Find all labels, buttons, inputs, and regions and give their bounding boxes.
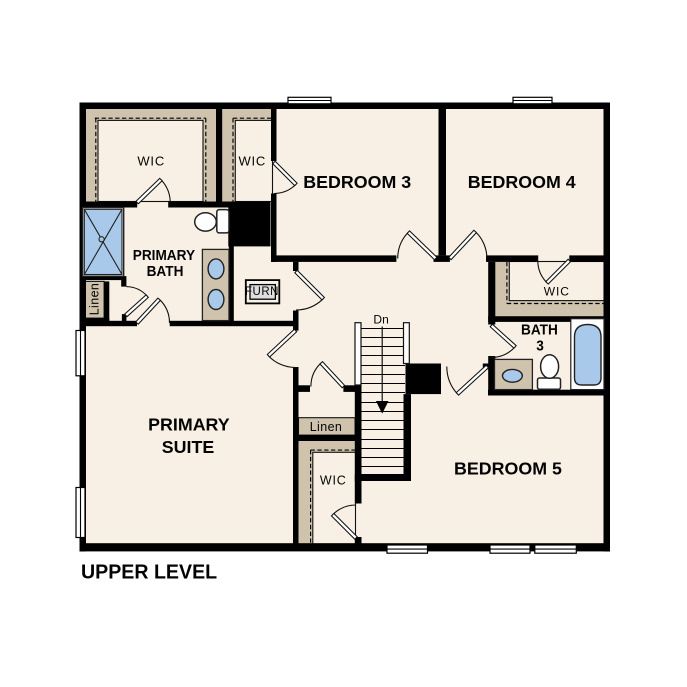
- svg-text:Linen: Linen: [88, 283, 102, 316]
- svg-text:WIC: WIC: [544, 284, 570, 298]
- svg-text:Dn: Dn: [373, 312, 388, 326]
- svg-text:PRIMARY: PRIMARY: [148, 415, 230, 435]
- svg-text:WIC: WIC: [320, 474, 347, 488]
- svg-text:FURN: FURN: [245, 286, 279, 298]
- svg-text:BEDROOM 5: BEDROOM 5: [454, 458, 562, 478]
- svg-text:WIC: WIC: [137, 154, 165, 169]
- svg-text:UPPER LEVEL: UPPER LEVEL: [81, 561, 217, 583]
- svg-text:PRIMARY: PRIMARY: [133, 247, 196, 263]
- svg-text:3: 3: [536, 337, 544, 353]
- svg-text:Linen: Linen: [310, 420, 343, 434]
- svg-text:BATH: BATH: [521, 321, 558, 337]
- svg-text:WIC: WIC: [238, 154, 266, 169]
- svg-text:SUITE: SUITE: [162, 437, 215, 457]
- svg-text:BEDROOM 3: BEDROOM 3: [303, 172, 411, 192]
- svg-text:BEDROOM 4: BEDROOM 4: [468, 172, 576, 192]
- svg-text:BATH: BATH: [147, 263, 184, 279]
